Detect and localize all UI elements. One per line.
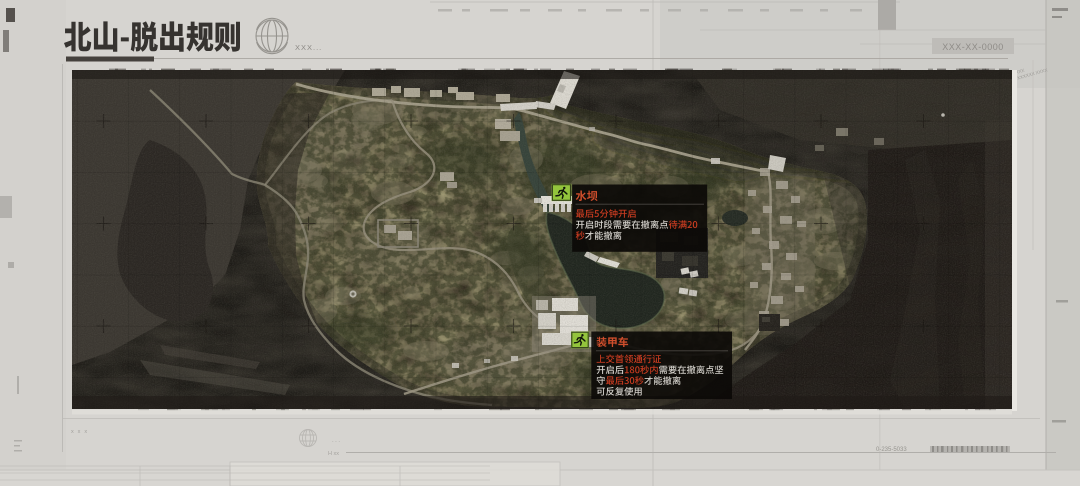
svg-text:H xx: H xx [328, 451, 339, 457]
svg-text:XXX-XX-0000: XXX-XX-0000 [942, 42, 1004, 52]
svg-text:XXX...: XXX... [295, 43, 322, 52]
svg-text:0-235-5033: 0-235-5033 [876, 447, 907, 453]
svg-text:x x x: x x x [71, 429, 88, 435]
svg-text:...: ... [332, 438, 342, 444]
